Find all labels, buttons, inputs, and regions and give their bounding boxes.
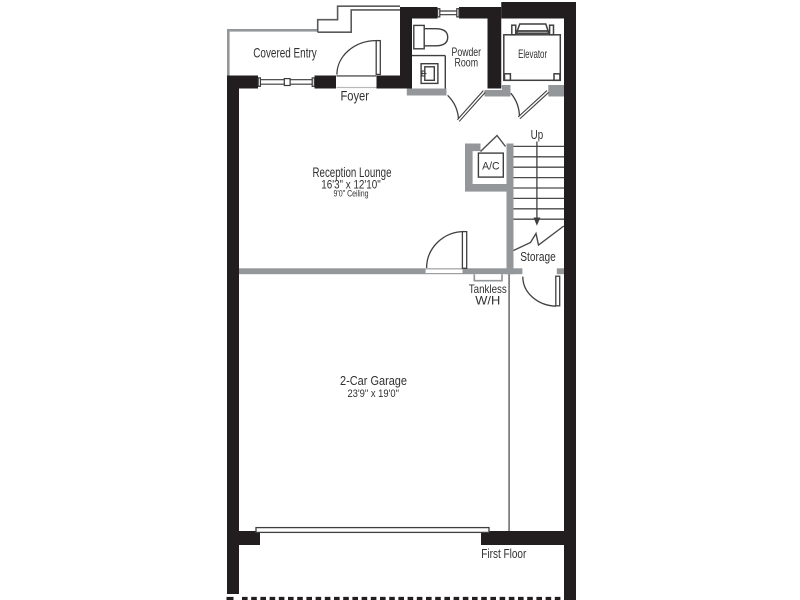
svg-text:23'9" x 19'0": 23'9" x 19'0": [347, 388, 399, 400]
svg-text:Up: Up: [531, 128, 544, 142]
svg-text:W/H: W/H: [475, 294, 500, 308]
svg-text:First Floor: First Floor: [481, 546, 527, 561]
svg-text:9'0" Ceiling: 9'0" Ceiling: [334, 187, 369, 198]
svg-text:Foyer: Foyer: [340, 88, 369, 103]
svg-text:Covered Entry: Covered Entry: [253, 46, 317, 61]
svg-text:Room: Room: [455, 55, 479, 69]
svg-text:Elevator: Elevator: [518, 47, 547, 61]
svg-text:Storage: Storage: [520, 249, 556, 264]
svg-text:2-Car Garage: 2-Car Garage: [340, 373, 407, 388]
svg-text:A/C: A/C: [482, 160, 500, 172]
